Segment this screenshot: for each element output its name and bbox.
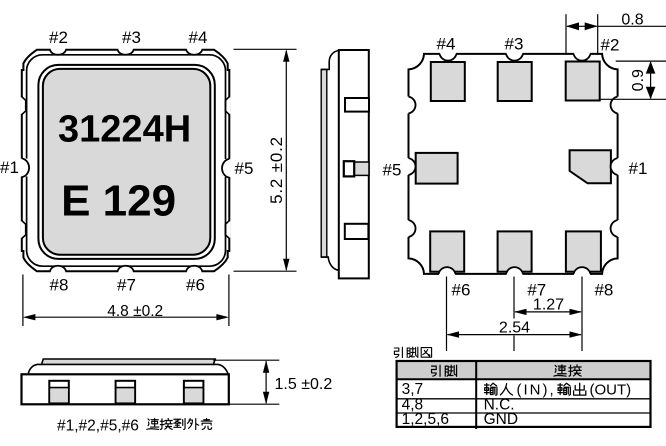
svg-text:#2: #2	[601, 35, 620, 54]
svg-text:#1,#2,#5,#6: #1,#2,#5,#6	[57, 417, 139, 434]
svg-text:1.27: 1.27	[533, 297, 564, 314]
svg-text:#2: #2	[49, 28, 68, 47]
svg-text:4.8 ±0.2: 4.8 ±0.2	[107, 303, 163, 320]
svg-text:#5: #5	[235, 159, 254, 178]
svg-text:5.2 ±0.2: 5.2 ±0.2	[267, 136, 286, 204]
svg-text:31224H: 31224H	[58, 109, 191, 151]
svg-text:1.5 ±0.2: 1.5 ±0.2	[275, 376, 333, 393]
svg-text:GND: GND	[484, 411, 518, 428]
svg-text:#4: #4	[189, 28, 208, 47]
svg-text:#6: #6	[452, 281, 471, 300]
svg-text:#5: #5	[383, 160, 402, 179]
svg-text:0.9: 0.9	[630, 69, 647, 91]
svg-text:#8: #8	[50, 276, 69, 295]
svg-text:E 129: E 129	[61, 177, 176, 226]
svg-text:(IN),: (IN),	[517, 381, 556, 398]
svg-text:#3: #3	[122, 28, 141, 47]
svg-text:#7: #7	[117, 276, 136, 295]
svg-text:2.54: 2.54	[499, 320, 530, 337]
svg-text:#4: #4	[437, 34, 456, 53]
svg-text:#6: #6	[186, 276, 205, 295]
svg-text:0.8: 0.8	[621, 12, 643, 29]
svg-text:#3: #3	[505, 34, 524, 53]
svg-text:#8: #8	[594, 281, 613, 300]
svg-text:1,2,5,6: 1,2,5,6	[402, 411, 449, 428]
svg-text:#1: #1	[0, 158, 19, 177]
svg-text:(OUT): (OUT)	[590, 381, 632, 398]
svg-text:3,7: 3,7	[402, 381, 424, 398]
svg-text:#1: #1	[629, 159, 648, 178]
